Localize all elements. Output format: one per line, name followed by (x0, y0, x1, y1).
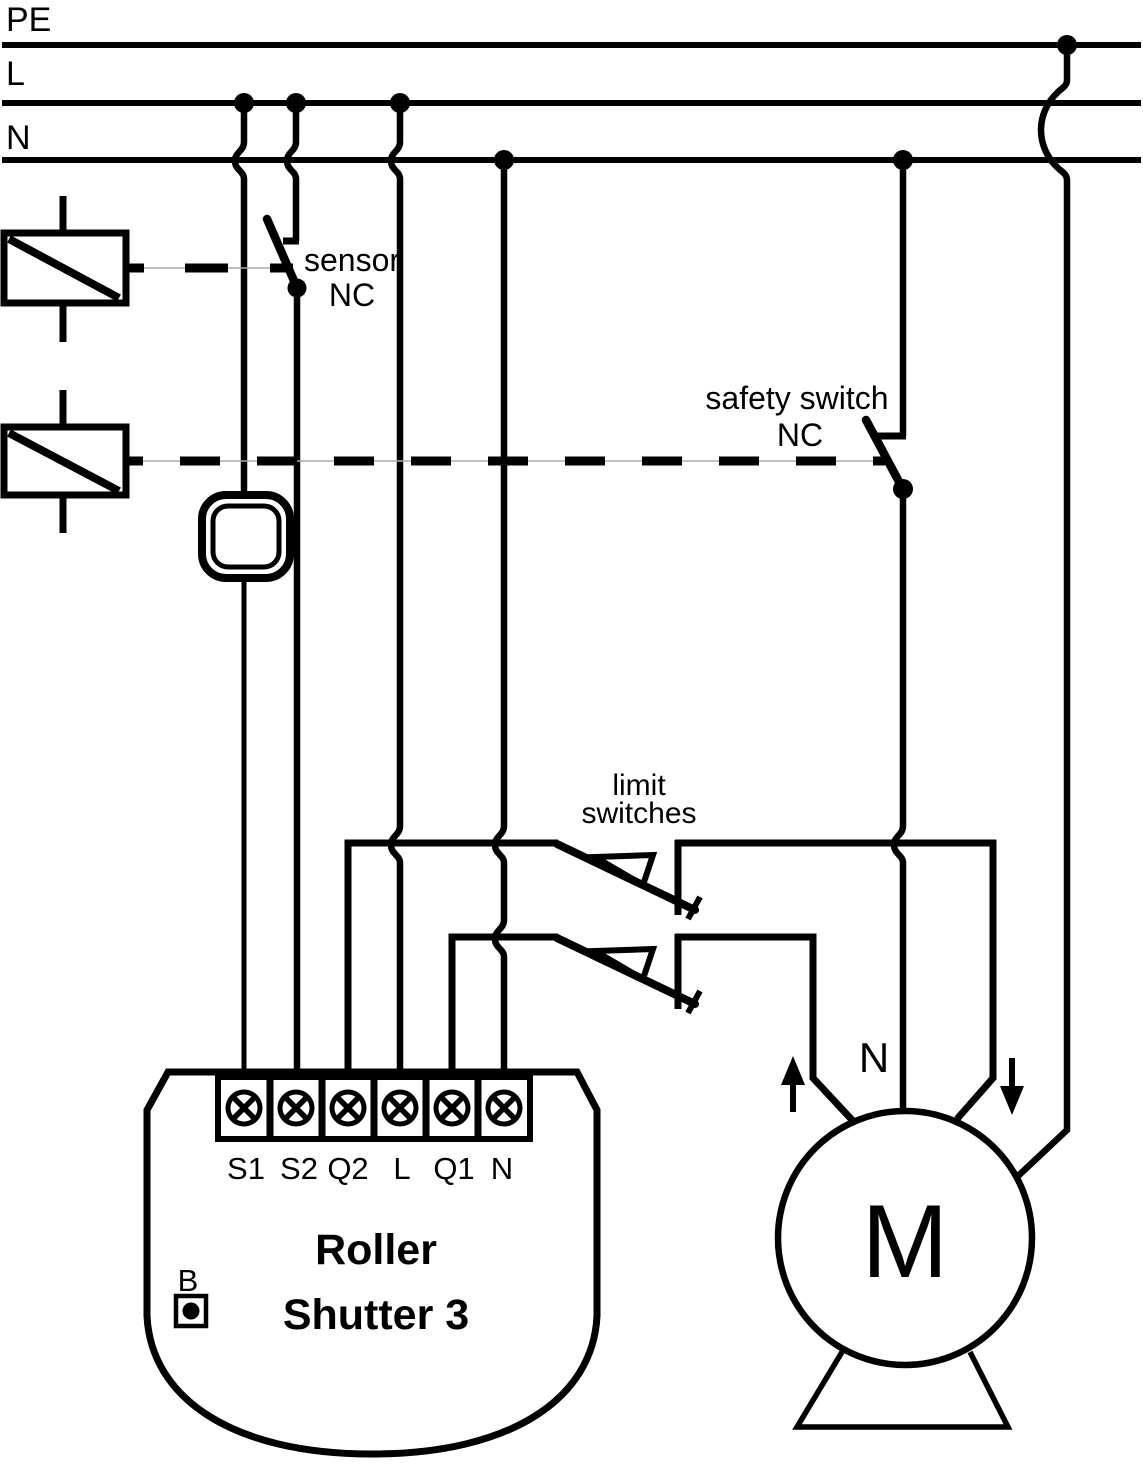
safety-switch-pivot-dot (893, 479, 913, 499)
safety-label-line1: safety switch (705, 380, 888, 416)
device-name-line2: Shutter 3 (283, 1291, 469, 1339)
sensor-nc-switch: sensor NC (267, 219, 400, 313)
up-winding-wire (675, 937, 853, 1121)
terminal-label-q1: Q1 (433, 1151, 474, 1186)
b-button-dot (183, 1303, 200, 1320)
s1-wire-upper (235, 106, 244, 499)
sensor-label-line2: NC (329, 277, 375, 313)
junction-dot (234, 93, 254, 113)
junction-dot (494, 150, 514, 170)
junction-dot (390, 93, 410, 113)
relay-coil-symbol-upper (4, 196, 126, 342)
terminal-label-q2: Q2 (327, 1151, 368, 1186)
momentary-push-button-symbol (202, 495, 290, 578)
limit-label-line2: switches (581, 797, 696, 830)
terminal-label-s1: S1 (227, 1151, 265, 1186)
junction-dot (286, 93, 306, 113)
b-service-button (176, 1296, 206, 1326)
safety-label-line2: NC (777, 417, 823, 453)
junction-dot (1057, 35, 1077, 55)
up-arrow-icon (781, 1056, 805, 1112)
terminal-labels: S1 S2 Q2 L Q1 N (227, 1151, 513, 1186)
n-terminal-wire (495, 163, 504, 1090)
pe-motor-wire (1017, 48, 1067, 1177)
terminal-label-n: N (491, 1151, 513, 1186)
wires (235, 48, 1067, 1177)
pe-bus-label: PE (6, 1, 51, 39)
roller-shutter-wiring-schematic: PE L N (0, 0, 1143, 1466)
s2-wire-upper (287, 106, 296, 241)
l-bus-label: L (6, 55, 25, 93)
motor-label: M (862, 1184, 949, 1300)
junction-dot (893, 150, 913, 170)
device-name-line1: Roller (315, 1226, 437, 1274)
relay-coil-diagonal (9, 433, 119, 491)
power-buses: PE L N (2, 1, 1141, 160)
sensor-label-line1: sensor (304, 242, 400, 278)
relay-coil-symbol-lower (4, 390, 126, 533)
terminal-label-l: L (393, 1151, 410, 1186)
motor-neutral-label: N (859, 1034, 889, 1081)
sensor-switch-pivot-dot (288, 279, 307, 298)
limit-switches: limit switches (348, 769, 993, 1121)
motor-neutral-wire (894, 489, 903, 1115)
down-arrow-icon (1000, 1058, 1024, 1115)
device-labels: Roller Shutter 3 B (176, 1226, 469, 1339)
wiring-diagram: PE L N (0, 0, 1143, 1466)
n-bus-label: N (6, 119, 31, 157)
relay-coil-diagonal (9, 239, 119, 298)
down-winding-wire (675, 843, 993, 1119)
b-button-label: B (178, 1263, 199, 1298)
terminal-block: S1 S2 Q2 L Q1 N (218, 1077, 530, 1186)
terminal-label-s2: S2 (280, 1151, 318, 1186)
